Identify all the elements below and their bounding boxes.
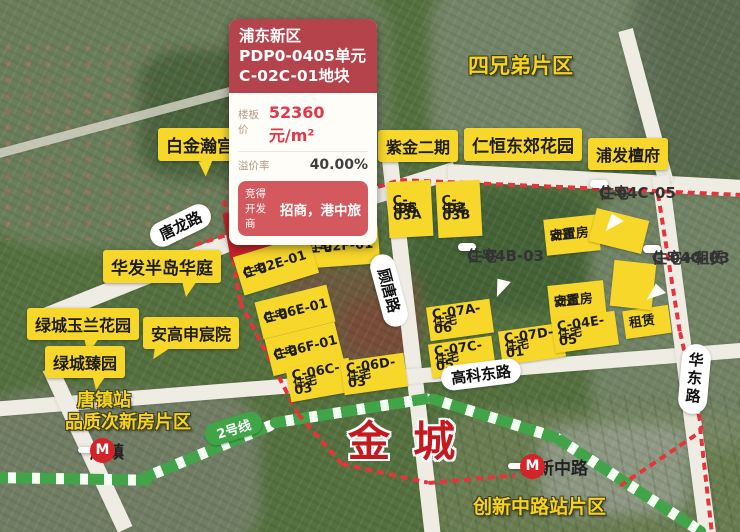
label-huafabandao: 华发半岛华庭 <box>103 250 221 283</box>
callout-c-04g-03: 住宅+租赁C-04G-03 <box>643 245 661 253</box>
district-chuangxin: 创新中路站片区 <box>473 492 606 519</box>
metro-station-tangzhen: 唐镇 M <box>78 447 96 453</box>
label-lvchengzhenyuan: 绿城臻园 <box>45 346 125 378</box>
label-pufatanfu: 浦发檀府 <box>588 138 668 170</box>
divider <box>238 151 368 152</box>
satellite-map: 住宅C-02C-01 住宅C-02D-01 住宅C-02F-01 住宅C-02E… <box>0 0 740 532</box>
metro-station-chuangxinzhonglu: 创新中路 M <box>508 463 526 469</box>
shanghai-metro-logo-icon: M <box>90 438 115 463</box>
developer-badge: 竞得开发商 招商，港中旅 <box>238 181 368 236</box>
label-lvchengyulan: 绿城玉兰花园 <box>27 308 139 340</box>
parcel-c-03a-06: 住宅C-03A-06 <box>387 180 434 238</box>
shanghai-metro-logo-icon: M <box>520 454 545 479</box>
floor-price-row: 楼板价 52360元/m² <box>238 100 368 149</box>
district-tangzhen-line2: 品质次新房片区 <box>65 408 191 434</box>
callout-c-04c-05: 住宅C-04C-05 <box>590 180 608 188</box>
premium-rate-row: 溢价率 40.00% <box>238 154 368 176</box>
info-panel-body: 楼板价 52360元/m² 溢价率 40.00% 竞得开发商 招商，港中旅 <box>229 93 377 245</box>
district-jincheng: 金城 <box>348 408 478 469</box>
info-panel-title: 浦东新区 PDP0-0405单元 C-02C-01地块 <box>229 19 377 93</box>
callout-c-04b-03: 住宅C-04B-03 <box>458 243 476 251</box>
label-renhengdongjiao: 仁恒东郊花园 <box>464 128 582 161</box>
label-zijinerqi: 紫金二期 <box>378 130 458 162</box>
district-sixiongdi: 四兄弟片区 <box>468 50 573 80</box>
info-panel: 浦东新区 PDP0-0405单元 C-02C-01地块 楼板价 52360元/m… <box>229 19 377 245</box>
label-tail <box>92 374 107 390</box>
label-tail <box>182 281 197 297</box>
label-tail <box>199 159 217 178</box>
parcel-c-03b-02: 住宅C-03B-02 <box>436 180 483 238</box>
